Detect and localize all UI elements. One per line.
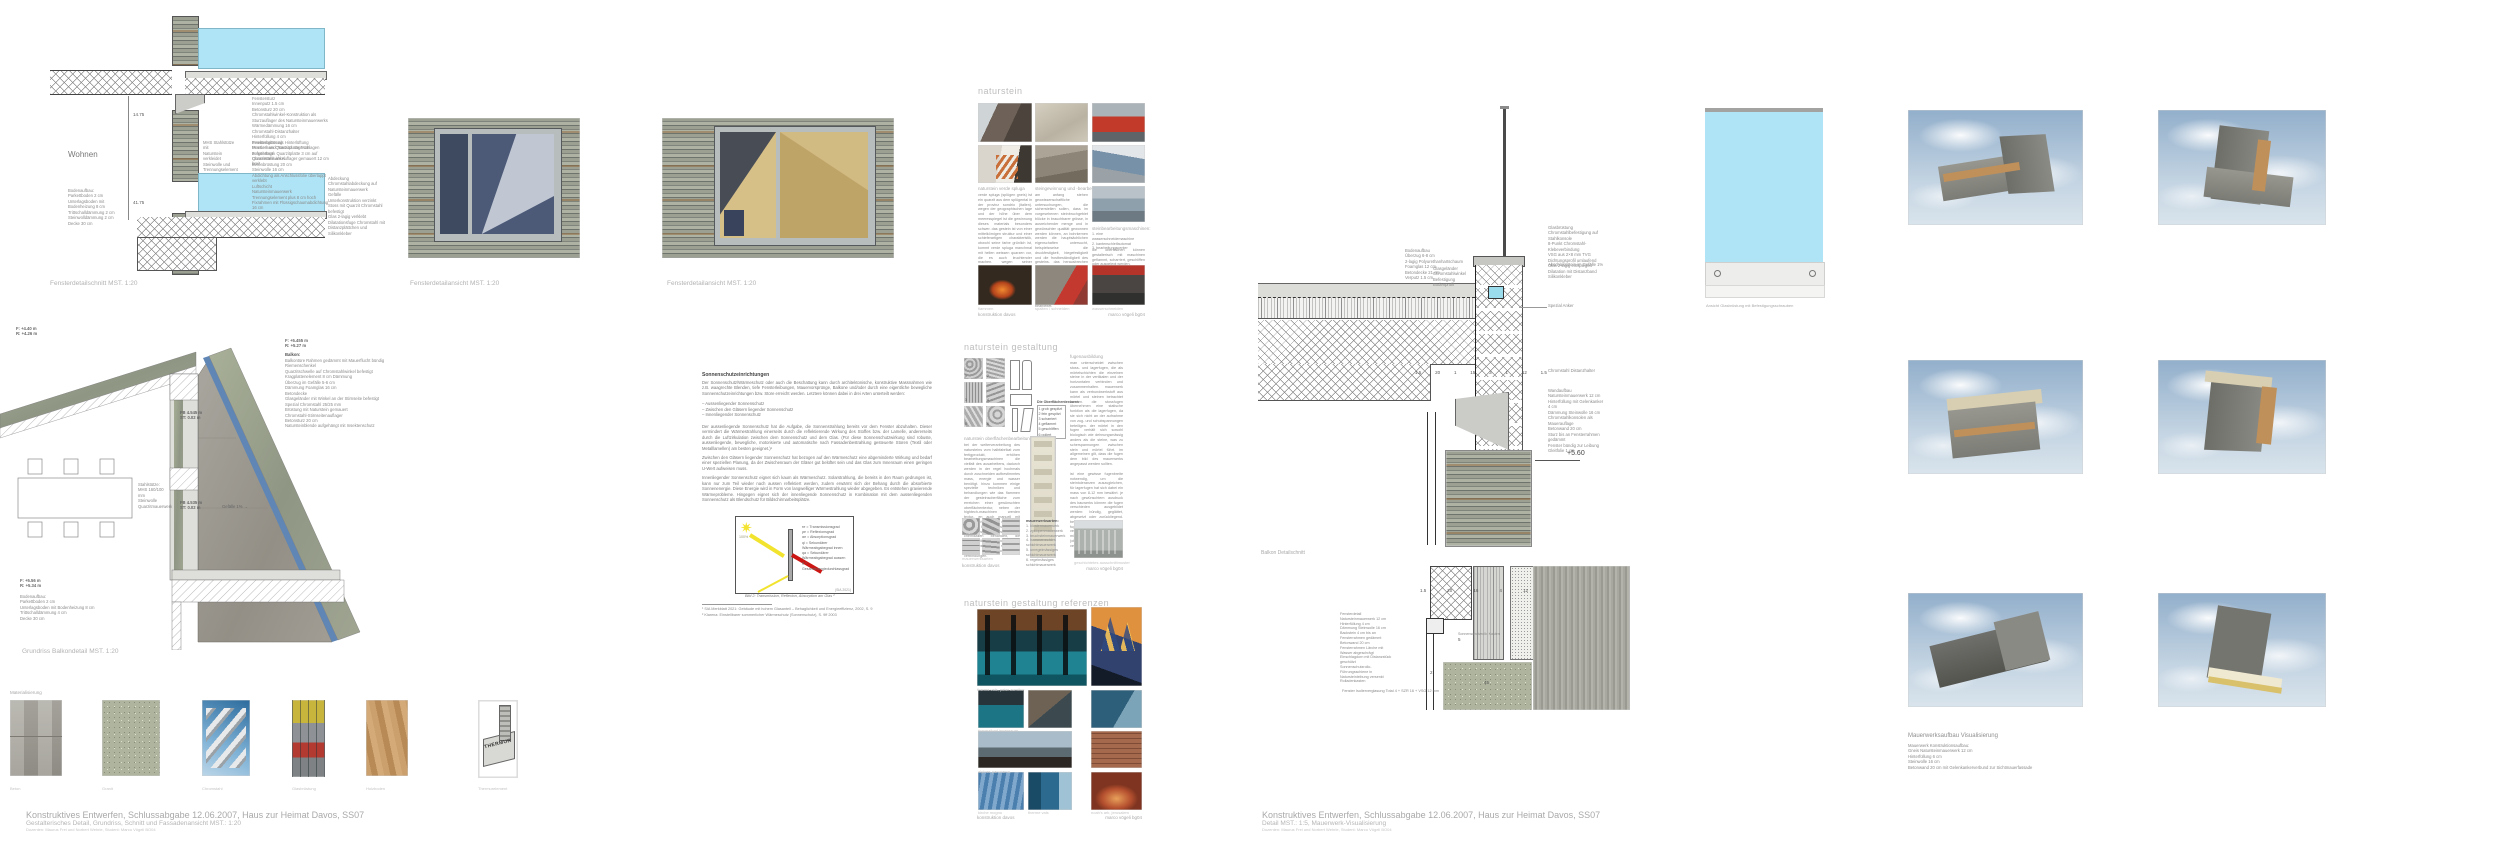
gneiss-cladding-photo bbox=[1445, 450, 1532, 547]
plan-stuetze-label: Stahlstütze: MHS 160/100 mm Steinwolle Q… bbox=[138, 482, 170, 509]
tool-drawing-2 bbox=[1022, 360, 1032, 390]
referenzen-caption-left: konstruktion davos bbox=[977, 815, 1015, 820]
ref-photo-spiral bbox=[1028, 690, 1072, 728]
annotation-bodenaufbau: Bodenaufbau: Parkettboden 2 cm Unterlags… bbox=[68, 188, 128, 226]
gestaltung-caption-left: konstruktion davos bbox=[962, 563, 1000, 568]
ref-photo-therme-vals bbox=[977, 609, 1087, 686]
footer-right-credits: Dozenten: Maurus Frei und Norbert Wehrle… bbox=[1262, 827, 1600, 832]
room-label: Wohnen bbox=[68, 150, 98, 159]
mauerwerk-tx-4 bbox=[962, 538, 980, 555]
plan-fb-label-1: FB 4.545 m ST: 0.02 m bbox=[180, 410, 202, 421]
dim-a: 1.5 bbox=[1415, 370, 1421, 378]
material-granit bbox=[102, 700, 160, 776]
footnote-2: ² Klarena: Einstellbarer sommerlicher Wä… bbox=[702, 613, 837, 617]
footer-left: Konstruktives Entwerfen, Schlussabgabe 1… bbox=[26, 810, 364, 832]
annotation-stuetze: MHS Stahlstütze mit Naturstein verkleide… bbox=[203, 140, 239, 173]
texture-number-5: 5 bbox=[965, 422, 967, 426]
footnote-divider bbox=[702, 604, 772, 605]
texture-number-6: 6 bbox=[987, 422, 989, 426]
slab2-hatch bbox=[137, 217, 325, 238]
footer-left-title: Konstruktives Entwerfen, Schlussabgabe 1… bbox=[26, 810, 364, 820]
ref-photo-dome bbox=[1091, 772, 1142, 810]
glazing-piece bbox=[1488, 286, 1504, 299]
window-pane-left bbox=[440, 134, 468, 234]
ref-cap-5: therme vals bbox=[1028, 810, 1049, 815]
render-corner-6 bbox=[2158, 593, 2326, 707]
slab-hatch-right bbox=[185, 78, 325, 95]
sonnenschutz-heading: Sonnenschutzeinrichtungen bbox=[702, 372, 932, 378]
caption-fensterdetailansicht-2: Fensterdetailansicht MST. 1:20 bbox=[667, 280, 756, 287]
photo-red-machine bbox=[1092, 103, 1145, 142]
detail-distanz-label: Chromstahl Distanzhalter bbox=[1548, 368, 1604, 373]
window-elevation-2 bbox=[662, 118, 894, 258]
sonnenschutz-p3: Zwischen den Gläsern liegender Sonnensch… bbox=[702, 455, 932, 471]
plan-level-topright: F: +5.455 m R: +5.27 m bbox=[285, 338, 308, 349]
material-glasbruestung bbox=[292, 700, 325, 777]
jamb-dims: 1.5 20 16 4 12 bbox=[1420, 588, 1528, 593]
thermur-tower bbox=[499, 705, 511, 741]
window-frame-line-1 bbox=[1427, 412, 1428, 545]
render-corner-2 bbox=[2158, 110, 2326, 225]
jamb-concrete-photo bbox=[1533, 566, 1630, 710]
maschinen-title: steinbearbeitungsmaschinen: bbox=[1092, 226, 1151, 231]
tool-drawing-5 bbox=[1020, 408, 1033, 432]
gestaltung-caption-right: marco vögeli bg04 bbox=[1070, 566, 1123, 571]
tool-drawing-4 bbox=[1012, 408, 1018, 432]
sail-shapes bbox=[1097, 617, 1135, 651]
mauerwerk-tx-6 bbox=[1002, 538, 1020, 555]
anker-leader bbox=[1521, 307, 1547, 308]
cap-chisel: spalten / schneiden bbox=[1035, 306, 1069, 311]
viz-lines: Mauerwerk Konstruktionsaufbau: Gneis Nat… bbox=[1908, 743, 2208, 770]
mauerwerk-list: 1. klostermauerwerk 2. zyklopenmauerwerk… bbox=[1026, 524, 1070, 567]
steel-bars bbox=[206, 708, 246, 768]
sonnenschutz-p1: Der Sonnenschutz/Wärmeschutz oder auch d… bbox=[702, 380, 932, 396]
jamb-frame-box bbox=[1426, 618, 1444, 634]
jamb-backing bbox=[1510, 566, 1534, 660]
photo-stone-wall bbox=[978, 103, 1032, 142]
material-label-thermur: Thermurelement bbox=[478, 786, 507, 791]
jamb-concrete bbox=[1473, 566, 1504, 660]
material-label-chromstahl: Chromstahl bbox=[202, 786, 222, 791]
material-holzboden bbox=[366, 700, 408, 776]
annotation-bruestung: Fensterbrüstung Fenster- und Türsturz an… bbox=[252, 140, 330, 211]
naturstein-caption-left: konstruktion davos bbox=[978, 312, 1016, 317]
footnote-1: ¹ SIA Merkblatt 2021: Gebäude mit hohem … bbox=[702, 607, 872, 611]
window-frame-line-2 bbox=[1435, 412, 1436, 545]
dim-f: 1 bbox=[1505, 370, 1508, 378]
dimension-value-1: 14.75 bbox=[133, 112, 144, 117]
texture-number-2: 2 bbox=[987, 374, 989, 378]
footer-left-credits: Dozenten: Maurus Frei und Norbert Wehrle… bbox=[26, 827, 364, 832]
dim-b2: 20 bbox=[1447, 588, 1452, 593]
dim-2: 2 bbox=[1430, 670, 1433, 675]
naturstein-heading: naturstein bbox=[978, 86, 1023, 96]
material-beton bbox=[10, 700, 62, 776]
materialisierung-heading: Materialisierung bbox=[10, 690, 42, 695]
material-thermur: THERMUR bbox=[478, 700, 518, 778]
balustrade-base-2 bbox=[1705, 285, 1825, 298]
ref-photo-corridor bbox=[1028, 772, 1072, 810]
tool-drawing-3 bbox=[1010, 394, 1032, 406]
concrete-slab bbox=[2204, 167, 2294, 207]
ref-photo-sails bbox=[1091, 607, 1142, 686]
fugen-title: fugenausbildung bbox=[1070, 354, 1103, 359]
detail-wandaufbau: Wandaufbau Natursteinmauerwerk 12 cm Hin… bbox=[1548, 388, 1606, 453]
level-line bbox=[1535, 460, 1580, 461]
caption-balkon-detail: Balkon Detailschnitt bbox=[1261, 550, 1305, 556]
ref-photo-facade bbox=[978, 772, 1024, 810]
photo-workshop bbox=[1092, 186, 1145, 222]
incident-beam bbox=[749, 533, 785, 558]
diagram-legend: τe = Transmissionsgrad ρe = Reflexionsgr… bbox=[802, 525, 850, 572]
wall-stone-strip-mid bbox=[172, 110, 199, 182]
material-label-holzboden: Holzboden bbox=[366, 786, 385, 791]
dim-b: 20 bbox=[1435, 370, 1440, 378]
ober-title: naturstein oberflächenbearbeitung bbox=[964, 436, 1032, 441]
dim-d: 15 bbox=[1470, 370, 1475, 378]
texture-number-3: 3 bbox=[965, 398, 967, 402]
texturen-list: 1 grob gespitzt 2 fein gespitzt 3 scharr… bbox=[1037, 405, 1066, 439]
wall-stone-strip-upper bbox=[172, 16, 199, 66]
plan-level-bottomleft: F: +5.56 m R: +5.34 m bbox=[20, 578, 41, 589]
railing-mast bbox=[1503, 108, 1506, 275]
plan-bodenaufbau: Bodenaufbau: Parkettboden 2 cm Unterlags… bbox=[20, 594, 100, 621]
balcony-detail-section: 1.5 20 1 15 3 1 12 1.5 +5.60 Bodenaufbau… bbox=[1255, 60, 1605, 560]
render-corner-3 bbox=[1908, 360, 2083, 474]
caption-jamb: Fenster Isolierverglasung Total 4 + SZR … bbox=[1342, 689, 1439, 693]
dim-e: 3 bbox=[1489, 370, 1492, 378]
referenzen-heading: naturstein gestaltung referenzen bbox=[964, 598, 1109, 608]
cut-wall-courses bbox=[1078, 530, 1119, 554]
ref-photo-panorama bbox=[978, 731, 1072, 768]
screw-icon-right bbox=[1809, 270, 1816, 277]
jamb-granite-photo bbox=[1443, 662, 1532, 710]
plan-balkon-annotations: Balkontüre Rahmen gedämmt mit Mauerfluch… bbox=[285, 358, 390, 429]
sonnenschutz-bullets: – Aussenliegender Sonnenschutz – Zwische… bbox=[702, 401, 932, 417]
glass-mullions bbox=[292, 700, 325, 777]
dim-b1: 1.5 bbox=[1420, 588, 1426, 593]
balcony-floor-plan: F: +4.40 m R: +4.26 m F: +5.455 m R: +5.… bbox=[0, 318, 420, 650]
material-label-granit: Granit bbox=[102, 786, 113, 791]
detail-rand-annotation: Glasbrüstung Chromstahlbefestigung auf S… bbox=[1548, 225, 1604, 280]
tool-drawing-1 bbox=[1010, 360, 1020, 390]
dimension-value-2: 41.75 bbox=[133, 200, 144, 205]
dim-g: 12 bbox=[1522, 370, 1527, 378]
dim-b5: 12 bbox=[1523, 588, 1528, 593]
screw-icon-left bbox=[1714, 270, 1721, 277]
glass-balustrade-elevation bbox=[1705, 108, 1823, 298]
balustrade-base bbox=[1705, 262, 1825, 286]
plan-balkon-title: Balkon: bbox=[285, 352, 300, 357]
gestaltung-heading: naturstein gestaltung bbox=[964, 342, 1058, 352]
footer-right: Konstruktives Entwerfen, Schlussabgabe 1… bbox=[1262, 810, 1600, 832]
referenzen-caption-right: marco vögeli bg04 bbox=[1089, 815, 1142, 820]
lagging-layer bbox=[1258, 298, 1475, 319]
annotation-abdeckung: Abdeckung Chromstahlabdeckung auf Naturs… bbox=[328, 176, 390, 236]
footer-left-subtitle: Gestalterisches Detail, Grundriss, Schni… bbox=[26, 820, 364, 827]
viz-title: Mauerwerksaufbau Visualisierung bbox=[1908, 733, 2208, 739]
dim-c: 1 bbox=[1454, 370, 1457, 378]
reflected-beam bbox=[758, 575, 789, 593]
sonnenschutz-column: Sonnenschutzeinrichtungen Der Sonnenschu… bbox=[702, 372, 932, 503]
dim-5: 5 bbox=[1458, 637, 1461, 642]
viz-caption-block: Mauerwerksaufbau Visualisierung Mauerwer… bbox=[1908, 733, 2208, 770]
window-jamb-detail: 1.5 20 16 4 12 45 5 2 Sonnenschutzrollo … bbox=[1340, 552, 1640, 722]
naturstein-caption-right: marco vögeli bg04 bbox=[1092, 312, 1145, 317]
plan-fb-label-2: FB 4.535 m ST: 0.02 m bbox=[180, 500, 202, 511]
cap-waterjet: wasserschneiden bbox=[1092, 306, 1123, 311]
render-corner-4 bbox=[2158, 360, 2326, 474]
dim-b3: 16 bbox=[1473, 588, 1478, 593]
jamb-insulation bbox=[1430, 566, 1472, 620]
material-label-glasbruestung: Glasbrüstung bbox=[292, 786, 316, 791]
dining-table-group bbox=[18, 459, 132, 537]
photo-stone-texture bbox=[1035, 103, 1088, 142]
concrete-joint bbox=[10, 736, 62, 737]
caption-fensterdetailschnitt: Fensterdetailschnitt MST. 1:20 bbox=[50, 280, 137, 287]
caption-grundriss: Grundriss Balkondetail MST. 1:20 bbox=[22, 648, 118, 655]
cap-flame: flammen bbox=[978, 306, 993, 311]
photo-flame bbox=[978, 265, 1032, 305]
sill-detail-hatch bbox=[137, 237, 217, 271]
photo-quarry bbox=[1035, 145, 1088, 183]
photo-stair-interior bbox=[978, 145, 1032, 183]
insulation-layer-2 bbox=[1258, 364, 1431, 401]
insulation-layer bbox=[1258, 320, 1475, 365]
plan-level-topleft: F: +4.40 m R: +4.26 m bbox=[16, 326, 37, 337]
photo-saw-machine bbox=[1092, 145, 1145, 183]
glazing-upper bbox=[198, 28, 325, 69]
glass-transmission-diagram: ✷ 100% τe = Transmissionsgrad ρe = Refle… bbox=[735, 516, 854, 594]
material-chromstahl bbox=[202, 700, 250, 776]
presentation-board: 14.75 41.75 Wohnen Bodenaufbau: Parkettb… bbox=[0, 0, 2499, 849]
texture-number-1: 1 bbox=[965, 374, 967, 378]
window-elevation-1 bbox=[408, 118, 580, 258]
diagram-percent: 100% bbox=[739, 535, 748, 539]
dim-45: 45 bbox=[1484, 680, 1489, 685]
naturstein-col1-title: naturstein verde spluga bbox=[978, 186, 1025, 191]
sonnenschutz-p4: Innenliegender Sonnenschutz eignet sich … bbox=[702, 475, 932, 502]
photo-waterjet bbox=[1092, 265, 1145, 305]
cut-wall-caption: geschichtetes ausschnittmuster bbox=[1074, 560, 1130, 565]
ref-cap-2: thermalbad innenraum bbox=[978, 728, 1018, 733]
stair-steps bbox=[996, 155, 1018, 179]
footer-right-subtitle: Detail MST.: 1:5, Mauerwerk-Visualisieru… bbox=[1262, 820, 1600, 827]
material-label-beton: Beton bbox=[10, 786, 20, 791]
mauerwerk-title: mauerwerksarten: bbox=[1026, 519, 1059, 523]
mast-cap bbox=[1500, 106, 1509, 109]
mauerwerk-tx-2 bbox=[982, 518, 1000, 535]
mauerwerk-tx-3 bbox=[1002, 518, 1020, 535]
vals-columns bbox=[985, 615, 1079, 675]
dim-h: 1.5 bbox=[1541, 370, 1547, 378]
slab-hatch-left bbox=[50, 70, 172, 95]
balustrade-glass bbox=[1705, 112, 1823, 262]
sonnenschutz-p2: Der aussenliegende Sonnenschutz hat die … bbox=[702, 424, 932, 451]
dim-b4: 4 bbox=[1499, 588, 1502, 593]
bild2-caption: Bild 2: Transmission, Reflexion, Absorpt… bbox=[745, 594, 834, 598]
dimension-chain: 1.5 20 1 15 3 1 12 1.5 bbox=[1415, 370, 1547, 378]
render-corner-5 bbox=[1908, 593, 2083, 707]
window-pane-small bbox=[724, 210, 744, 236]
mauerwerk-tx-1 bbox=[962, 518, 980, 535]
caption-fensterdetailansicht-1: Fensterdetailansicht MST. 1:20 bbox=[410, 280, 499, 287]
mauerwerk-caption: mauerwerksarten bbox=[962, 556, 993, 561]
detail-abschluss-label: Abschlussstein im Gefälle 1% bbox=[1548, 262, 1604, 267]
render-corner-1 bbox=[1908, 110, 2083, 225]
ref-cap-1: therme vals, peter zumthor bbox=[977, 687, 1025, 692]
dimension-line bbox=[128, 96, 129, 220]
mauerwerk-tx-5 bbox=[982, 538, 1000, 555]
photo-cut-wall bbox=[1074, 520, 1123, 558]
caption-glass-balustrade: Ansicht Glasbrüstung mit Befestigungssch… bbox=[1706, 303, 1793, 308]
jamb-rollo-label: Sonnenschutzrollo Kasten bbox=[1458, 632, 1502, 637]
detail-anker-label: Spezial Anker bbox=[1548, 303, 1604, 308]
ref-photo-brick bbox=[1091, 731, 1142, 768]
texture-number-4: 4 bbox=[987, 398, 989, 402]
ref-photo-blue-stone bbox=[1091, 690, 1142, 728]
ref-photo-pool bbox=[978, 690, 1024, 728]
detail-glas-label: Glasgeländer Chromstahlwinkel Befestigun… bbox=[1433, 266, 1469, 288]
plan-gefaelle-label: Gefälle 1% → bbox=[222, 504, 248, 509]
ref-cap-3: alpines panorama bbox=[978, 769, 1010, 774]
diagram-source: (SIA 2021) bbox=[835, 588, 851, 592]
footer-right-title: Konstruktives Entwerfen, Schlussabgabe 1… bbox=[1262, 810, 1600, 820]
photo-chisel bbox=[1035, 265, 1088, 305]
jamb-annotations: Fensterdetail Natursteinmauerwerk 12 cm … bbox=[1340, 612, 1394, 684]
